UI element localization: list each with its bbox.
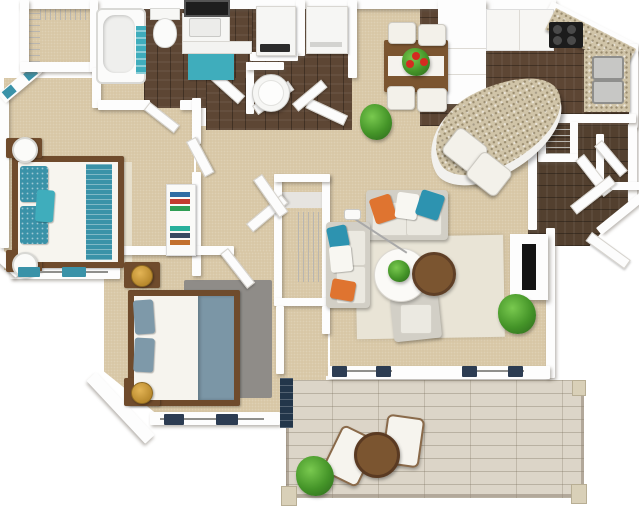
flat-tv	[522, 244, 536, 290]
teal-accent-pillow	[35, 189, 55, 222]
books	[170, 206, 190, 211]
navy-curtain	[216, 414, 238, 425]
dining-chair	[418, 24, 446, 46]
floor-plan-3d	[0, 0, 639, 508]
patio-bush	[296, 456, 334, 496]
linen-closet-shelf	[282, 192, 322, 208]
front-door	[586, 232, 631, 269]
washer-door-slot	[260, 44, 290, 52]
gold-table-lamp	[131, 382, 153, 404]
red-flower	[420, 58, 428, 66]
vanity-cabinet	[182, 41, 252, 54]
wall	[628, 124, 637, 202]
blue-gray-pillow	[133, 299, 155, 334]
red-flower	[412, 52, 420, 60]
burner	[567, 36, 576, 45]
vanity-mirror	[184, 0, 230, 17]
wall	[538, 154, 578, 162]
navy-curtain	[508, 366, 523, 377]
orange-pillow	[329, 278, 356, 302]
closet-wire-shelf	[40, 8, 90, 20]
teal-towels	[136, 26, 146, 74]
patio-round-table	[354, 432, 400, 478]
wall	[20, 0, 29, 70]
navy-curtain	[462, 366, 477, 377]
potted-plant	[498, 294, 536, 334]
wall	[274, 298, 330, 306]
wall	[98, 100, 150, 110]
patio-railing-right	[581, 380, 584, 496]
teal-bath-mat	[188, 54, 234, 80]
toilet	[153, 18, 177, 48]
books	[170, 240, 190, 245]
water-heater-top	[258, 80, 284, 106]
dining-chair	[387, 86, 415, 110]
dining-chair	[417, 88, 447, 112]
vanity-sink	[189, 18, 221, 37]
dining-chair	[388, 22, 416, 44]
wall	[276, 306, 284, 374]
blue-gray-blanket	[198, 296, 234, 400]
patio-post	[572, 380, 586, 396]
wall	[322, 306, 330, 334]
teal-curtain	[62, 267, 86, 277]
kitchen-sink-basin	[592, 56, 624, 80]
wall	[348, 0, 357, 78]
burner	[553, 25, 562, 34]
burner	[567, 25, 576, 34]
patio-glass-door	[280, 378, 293, 428]
armchair-cushion	[400, 304, 432, 334]
white-table-lamp	[12, 137, 38, 163]
blue-gray-pillow	[133, 337, 155, 372]
books	[170, 199, 190, 204]
white-pillow	[329, 245, 354, 273]
wall	[0, 96, 9, 248]
nook-floor	[278, 296, 328, 376]
wall	[296, 0, 305, 56]
navy-curtain	[164, 414, 184, 425]
navy-curtain	[332, 366, 347, 377]
books	[170, 226, 190, 231]
bathtub-basin	[103, 15, 135, 73]
coffee-table-plant	[388, 260, 410, 282]
arc-floor-lamp-head	[344, 209, 361, 220]
burner	[553, 36, 562, 45]
patio-railing-bottom	[286, 494, 582, 497]
wall	[246, 62, 284, 70]
wall	[20, 62, 94, 72]
teal-curtain	[18, 267, 40, 277]
linen-closet-wire-shelf	[298, 212, 320, 282]
books	[170, 192, 190, 197]
round-side-table	[412, 252, 456, 296]
books	[170, 233, 190, 238]
patio-post	[281, 486, 297, 506]
dryer-door-line	[310, 42, 342, 47]
potted-plant	[360, 104, 392, 140]
gold-table-lamp	[131, 265, 153, 287]
wall	[274, 174, 330, 182]
teal-bed-runner	[86, 164, 112, 260]
red-flower	[406, 60, 414, 68]
navy-curtain	[376, 366, 391, 377]
kitchen-sink-basin	[592, 80, 624, 104]
kitchen-counter	[486, 9, 554, 51]
patio-post	[571, 484, 587, 504]
closet-wire-shelf	[28, 8, 40, 62]
